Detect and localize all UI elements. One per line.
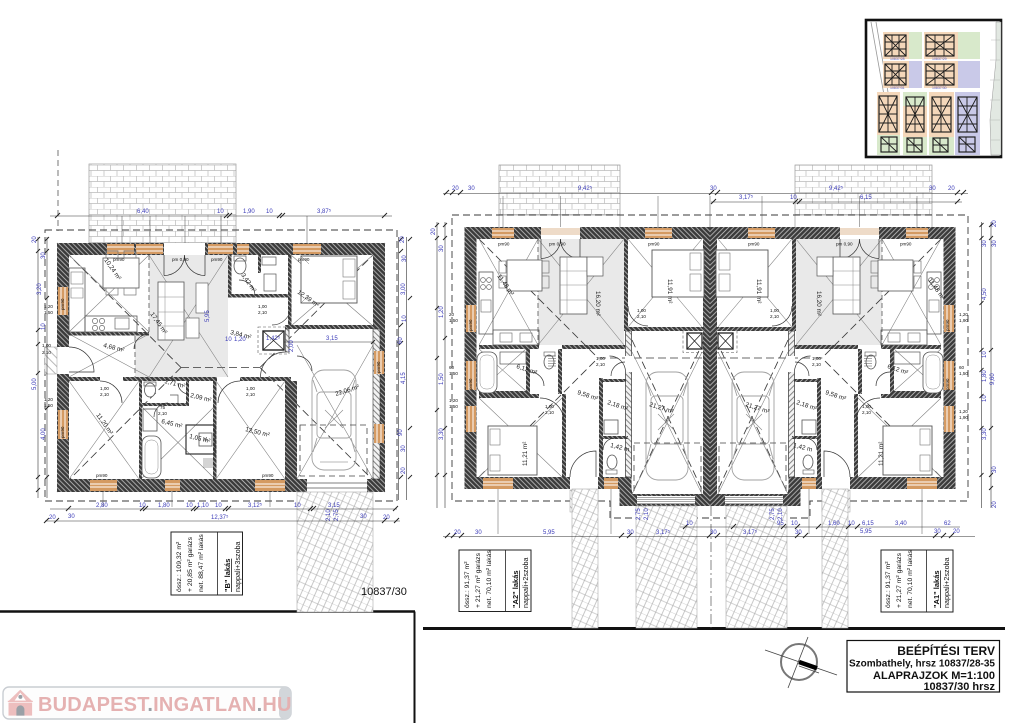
svg-text:pm 0,90: pm 0,90 bbox=[836, 242, 853, 247]
svg-text:9,42⁵: 9,42⁵ bbox=[578, 185, 593, 192]
svg-text:2,10: 2,10 bbox=[545, 410, 554, 415]
svg-text:2,10: 2,10 bbox=[644, 508, 650, 520]
svg-text:4,50: 4,50 bbox=[982, 288, 988, 300]
svg-text:2,10: 2,10 bbox=[862, 410, 871, 415]
svg-text:pm90: pm90 bbox=[648, 242, 660, 247]
svg-text:30: 30 bbox=[68, 514, 75, 520]
svg-text:10: 10 bbox=[402, 315, 408, 322]
svg-text:10: 10 bbox=[217, 209, 224, 215]
svg-text:pm90: pm90 bbox=[498, 242, 510, 247]
svg-text:60: 60 bbox=[398, 337, 404, 344]
svg-text:10: 10 bbox=[791, 521, 798, 527]
svg-text:1,10: 1,10 bbox=[197, 503, 209, 509]
svg-text:2,10: 2,10 bbox=[770, 314, 779, 319]
svg-text:12,37⁵: 12,37⁵ bbox=[211, 514, 229, 521]
svg-text:össz.: 109,32 m²: össz.: 109,32 m² bbox=[176, 541, 183, 592]
svg-text:60: 60 bbox=[959, 365, 965, 370]
svg-text:10: 10 bbox=[266, 209, 273, 215]
svg-text:11,21 m²: 11,21 m² bbox=[878, 442, 885, 466]
svg-text:10: 10 bbox=[186, 503, 193, 509]
svg-text:2,75: 2,75 bbox=[636, 508, 642, 520]
svg-text:10: 10 bbox=[41, 323, 47, 330]
svg-text:Szombathely, hrsz 10837/28-35: Szombathely, hrsz 10837/28-35 bbox=[849, 659, 995, 670]
svg-text:össz.: 91,37 m²: össz.: 91,37 m² bbox=[464, 561, 471, 608]
svg-text:30: 30 bbox=[41, 252, 47, 259]
svg-text:4,15: 4,15 bbox=[401, 372, 407, 384]
svg-text:3,17⁵: 3,17⁵ bbox=[656, 529, 671, 536]
svg-text:20: 20 bbox=[49, 515, 56, 521]
svg-text:20: 20 bbox=[32, 236, 38, 243]
svg-text:10: 10 bbox=[225, 337, 232, 343]
svg-text:4,00: 4,00 bbox=[41, 428, 47, 440]
svg-text:+ 21,27 m² garázs: + 21,27 m² garázs bbox=[896, 552, 903, 608]
svg-text:1,00: 1,00 bbox=[812, 356, 821, 361]
svg-text:pm 0,90: pm 0,90 bbox=[549, 242, 566, 247]
svg-text:1,00: 1,00 bbox=[545, 404, 554, 409]
svg-text:2,80: 2,80 bbox=[96, 503, 108, 509]
svg-text:pm90: pm90 bbox=[900, 242, 912, 247]
svg-text:pm90: pm90 bbox=[60, 298, 65, 310]
svg-text:2,75: 2,75 bbox=[770, 508, 776, 520]
svg-text:2,10: 2,10 bbox=[158, 411, 167, 416]
svg-text:BEÉPÍTÉSI TERV: BEÉPÍTÉSI TERV bbox=[897, 643, 995, 658]
svg-text:pm90: pm90 bbox=[468, 319, 473, 331]
svg-text:5,00: 5,00 bbox=[32, 378, 38, 390]
svg-text:30: 30 bbox=[929, 186, 936, 192]
svg-text:1,42⁵: 1,42⁵ bbox=[266, 335, 281, 342]
svg-text:10: 10 bbox=[215, 503, 222, 509]
svg-text:95: 95 bbox=[777, 521, 784, 527]
svg-text:20: 20 bbox=[454, 530, 461, 536]
svg-text:2,10: 2,10 bbox=[42, 350, 51, 355]
svg-text:6,40: 6,40 bbox=[137, 209, 149, 215]
svg-text:+ 20,85 m² garázs: + 20,85 m² garázs bbox=[187, 536, 194, 592]
svg-text:1,00: 1,00 bbox=[770, 308, 779, 313]
svg-text:1,90: 1,90 bbox=[243, 209, 255, 215]
svg-text:16,20 m²: 16,20 m² bbox=[594, 291, 601, 316]
svg-text:1,90: 1,90 bbox=[959, 318, 968, 323]
svg-text:2,10: 2,10 bbox=[326, 509, 332, 521]
svg-text:1,90: 1,90 bbox=[959, 415, 968, 420]
svg-text:3,30: 3,30 bbox=[439, 428, 445, 440]
svg-text:1,00: 1,00 bbox=[100, 386, 109, 391]
svg-text:2,10: 2,10 bbox=[812, 362, 821, 367]
svg-text:1,50: 1,50 bbox=[959, 371, 968, 376]
svg-text:6,15: 6,15 bbox=[862, 521, 874, 527]
svg-text:"A1" lakás: "A1" lakás bbox=[932, 570, 941, 608]
svg-text:20: 20 bbox=[383, 515, 390, 521]
svg-text:1,00: 1,00 bbox=[42, 343, 51, 348]
svg-text:net. 88,47 m² lakás: net. 88,47 m² lakás bbox=[198, 534, 205, 592]
svg-text:30: 30 bbox=[475, 530, 482, 536]
svg-text:2,10: 2,10 bbox=[778, 508, 784, 520]
svg-text:pm90: pm90 bbox=[211, 257, 223, 262]
svg-text:10: 10 bbox=[686, 521, 693, 527]
svg-text:2,10: 2,10 bbox=[246, 392, 255, 397]
svg-text:3,00: 3,00 bbox=[401, 283, 407, 295]
svg-text:20: 20 bbox=[992, 501, 998, 508]
svg-text:2,75: 2,75 bbox=[334, 509, 340, 521]
svg-text:30: 30 bbox=[402, 255, 408, 262]
svg-text:net. 70,10 m² lakás: net. 70,10 m² lakás bbox=[486, 550, 493, 608]
svg-text:pm90: pm90 bbox=[262, 473, 274, 478]
svg-text:1,20: 1,20 bbox=[44, 397, 53, 402]
svg-text:20: 20 bbox=[992, 220, 998, 227]
svg-text:1,20: 1,20 bbox=[959, 312, 968, 317]
svg-text:pm90: pm90 bbox=[113, 257, 125, 262]
svg-text:1,00: 1,00 bbox=[596, 356, 605, 361]
svg-text:1,00: 1,00 bbox=[637, 308, 646, 313]
svg-text:5,95: 5,95 bbox=[205, 310, 211, 322]
svg-text:20: 20 bbox=[953, 529, 960, 535]
svg-text:30: 30 bbox=[439, 245, 445, 252]
svg-text:+ 21,27 m² garázs: + 21,27 m² garázs bbox=[475, 552, 482, 608]
svg-text:"B" lakás: "B" lakás bbox=[223, 559, 232, 592]
svg-text:3,20: 3,20 bbox=[37, 283, 43, 295]
svg-text:2,10: 2,10 bbox=[596, 362, 605, 367]
svg-text:1,00: 1,00 bbox=[258, 304, 267, 309]
svg-text:10837/28: 10837/28 bbox=[890, 57, 905, 61]
svg-text:net. 70,10 m² lakás: net. 70,10 m² lakás bbox=[907, 550, 914, 608]
svg-text:10: 10 bbox=[790, 195, 797, 201]
svg-text:2,10: 2,10 bbox=[100, 392, 109, 397]
svg-text:pm90: pm90 bbox=[748, 242, 760, 247]
svg-text:90: 90 bbox=[398, 429, 404, 436]
svg-text:30: 30 bbox=[401, 445, 407, 452]
svg-text:1,20: 1,20 bbox=[439, 306, 445, 318]
svg-text:9,42⁵: 9,42⁵ bbox=[829, 185, 844, 192]
svg-text:10: 10 bbox=[848, 521, 855, 527]
svg-text:30: 30 bbox=[992, 466, 998, 473]
svg-text:1,50: 1,50 bbox=[44, 403, 53, 408]
svg-text:1,60: 1,60 bbox=[828, 521, 840, 527]
svg-text:11,21 m²: 11,21 m² bbox=[522, 442, 529, 466]
svg-text:1,20: 1,20 bbox=[44, 304, 53, 309]
svg-text:1,50: 1,50 bbox=[439, 373, 445, 385]
svg-text:pm90: pm90 bbox=[60, 426, 65, 438]
svg-text:20: 20 bbox=[452, 186, 459, 192]
svg-text:1,20: 1,20 bbox=[959, 409, 968, 414]
svg-text:10837/30: 10837/30 bbox=[361, 586, 407, 598]
svg-text:30: 30 bbox=[360, 514, 367, 520]
svg-text:1,80: 1,80 bbox=[158, 503, 170, 509]
svg-text:10837/30: 10837/30 bbox=[932, 86, 947, 90]
svg-text:30: 30 bbox=[982, 240, 988, 247]
svg-text:nappali+2szoba: nappali+2szoba bbox=[942, 557, 951, 608]
svg-text:9,60: 9,60 bbox=[990, 373, 996, 385]
svg-text:1,80: 1,80 bbox=[982, 370, 988, 382]
svg-text:"A2" lakás: "A2" lakás bbox=[511, 570, 520, 608]
svg-text:3,40: 3,40 bbox=[895, 521, 907, 527]
svg-text:3,15: 3,15 bbox=[326, 336, 338, 342]
svg-text:1,50: 1,50 bbox=[44, 310, 53, 315]
svg-text:1,50: 1,50 bbox=[449, 318, 458, 323]
svg-text:30: 30 bbox=[627, 530, 634, 536]
svg-text:2,10: 2,10 bbox=[258, 310, 267, 315]
svg-text:10: 10 bbox=[294, 503, 301, 509]
svg-text:30: 30 bbox=[795, 530, 802, 536]
svg-text:3,17⁵: 3,17⁵ bbox=[739, 194, 754, 201]
svg-text:10: 10 bbox=[982, 351, 988, 358]
svg-text:1,00: 1,00 bbox=[862, 404, 871, 409]
svg-text:30: 30 bbox=[710, 530, 717, 536]
svg-text:11,91 m²: 11,91 m² bbox=[755, 279, 762, 303]
svg-text:10837/31: 10837/31 bbox=[890, 86, 905, 90]
svg-text:BUDAPEST.INGATLAN.HU: BUDAPEST.INGATLAN.HU bbox=[38, 694, 292, 716]
svg-text:pm 0,90: pm 0,90 bbox=[172, 257, 189, 262]
svg-text:3,17⁵: 3,17⁵ bbox=[743, 529, 758, 536]
svg-text:5,95: 5,95 bbox=[543, 530, 555, 536]
svg-text:30: 30 bbox=[992, 240, 998, 247]
svg-text:30: 30 bbox=[468, 186, 475, 192]
svg-text:5,95: 5,95 bbox=[860, 529, 872, 535]
svg-text:20: 20 bbox=[449, 312, 455, 317]
svg-text:10837/30 hrsz: 10837/30 hrsz bbox=[923, 681, 995, 693]
svg-text:pm90: pm90 bbox=[945, 319, 950, 331]
svg-text:össz.: 91,37 m²: össz.: 91,37 m² bbox=[885, 561, 892, 608]
svg-text:20: 20 bbox=[401, 467, 407, 474]
svg-text:11,91 m²: 11,91 m² bbox=[666, 279, 673, 303]
svg-text:2,00: 2,00 bbox=[289, 340, 295, 352]
svg-text:30: 30 bbox=[710, 186, 717, 192]
svg-text:20: 20 bbox=[431, 228, 437, 235]
svg-text:75: 75 bbox=[160, 405, 166, 410]
svg-text:20: 20 bbox=[400, 236, 406, 243]
svg-text:1,20: 1,20 bbox=[449, 398, 458, 403]
svg-text:10: 10 bbox=[982, 395, 988, 402]
svg-text:nappali+2szoba: nappali+2szoba bbox=[521, 557, 530, 608]
svg-text:nappali+3szoba: nappali+3szoba bbox=[233, 541, 242, 592]
svg-text:3,12⁵: 3,12⁵ bbox=[248, 502, 263, 509]
svg-text:3,30: 3,30 bbox=[982, 428, 988, 440]
svg-text:16,20 m²: 16,20 m² bbox=[815, 291, 822, 316]
svg-text:3,87⁵: 3,87⁵ bbox=[317, 208, 332, 215]
svg-text:pm90: pm90 bbox=[298, 257, 310, 262]
svg-text:1,00: 1,00 bbox=[246, 386, 255, 391]
svg-text:10: 10 bbox=[139, 503, 146, 509]
svg-text:60: 60 bbox=[449, 365, 455, 370]
svg-text:pm90: pm90 bbox=[468, 378, 473, 390]
svg-text:pm90: pm90 bbox=[376, 361, 381, 373]
svg-text:1,20: 1,20 bbox=[234, 337, 246, 343]
svg-text:1,50: 1,50 bbox=[449, 404, 458, 409]
svg-text:1,50: 1,50 bbox=[449, 371, 458, 376]
svg-text:6,15: 6,15 bbox=[860, 195, 872, 201]
svg-text:62: 62 bbox=[944, 521, 951, 527]
svg-text:30: 30 bbox=[934, 529, 941, 535]
svg-text:20: 20 bbox=[948, 186, 955, 192]
svg-text:pm90: pm90 bbox=[945, 378, 950, 390]
svg-text:2,10: 2,10 bbox=[637, 314, 646, 319]
svg-text:pm90: pm90 bbox=[96, 473, 108, 478]
svg-text:3,15: 3,15 bbox=[328, 503, 340, 509]
svg-text:10837/29: 10837/29 bbox=[932, 57, 947, 61]
